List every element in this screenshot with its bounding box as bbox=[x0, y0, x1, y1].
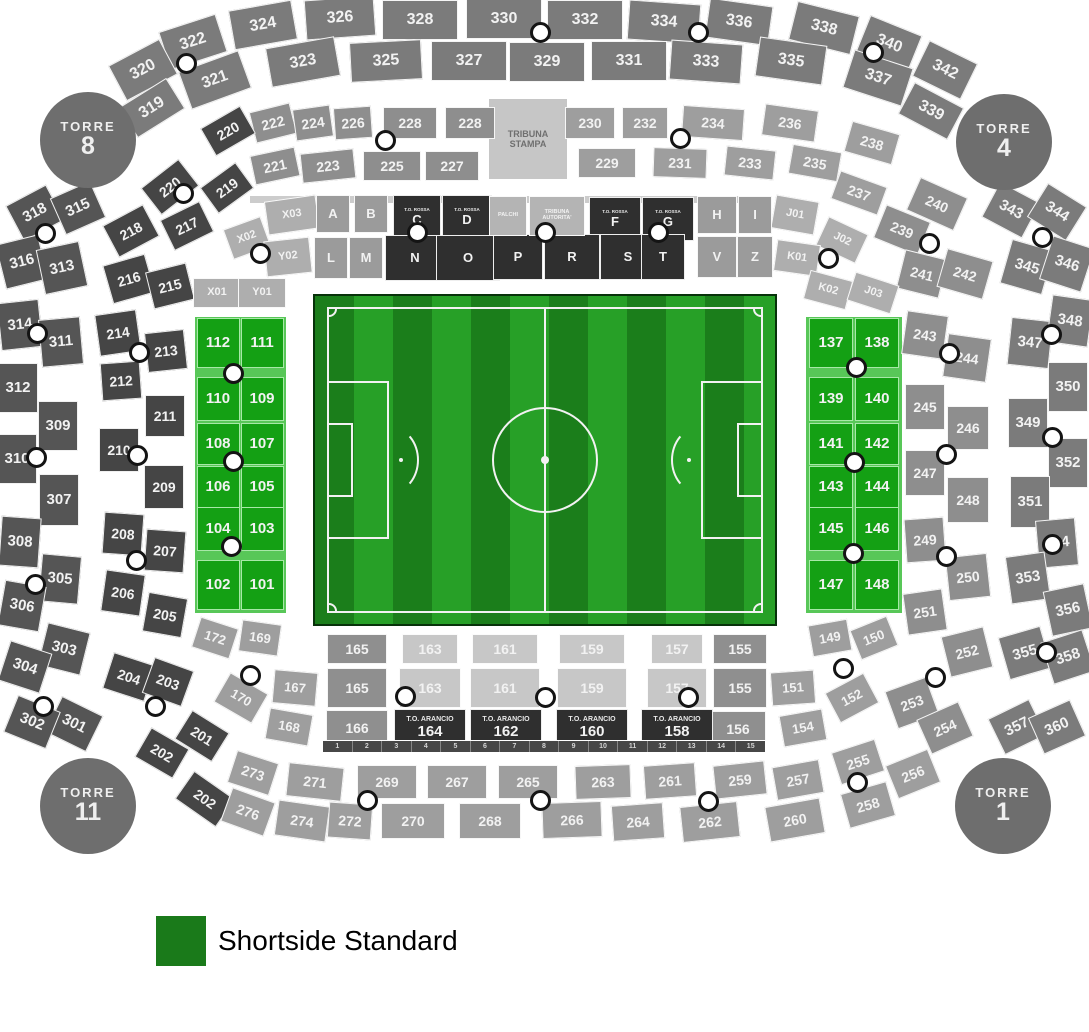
gate-marker bbox=[535, 222, 556, 243]
gate-marker bbox=[936, 546, 957, 567]
section-232[interactable]: 232 bbox=[622, 107, 668, 139]
section-161[interactable]: 161 bbox=[472, 634, 538, 664]
section-139[interactable]: 139 bbox=[809, 377, 853, 421]
section-260[interactable]: 260 bbox=[764, 797, 825, 842]
section-271[interactable]: 271 bbox=[285, 762, 344, 802]
legend: Shortside Standard bbox=[156, 916, 458, 966]
row-number: 7 bbox=[499, 741, 529, 752]
gate-marker bbox=[530, 790, 551, 811]
row-number: 9 bbox=[558, 741, 588, 752]
stadium-map: TRIBUNA STAMPA 3223243263283303323343363… bbox=[0, 0, 1089, 1032]
gate-marker bbox=[925, 667, 946, 688]
section-242[interactable]: 242 bbox=[936, 248, 993, 300]
section-a[interactable]: A bbox=[316, 195, 350, 233]
section-256[interactable]: 256 bbox=[885, 749, 941, 800]
gate-marker bbox=[250, 243, 271, 264]
section-165[interactable]: 165 bbox=[327, 634, 387, 664]
section-238[interactable]: 238 bbox=[844, 121, 901, 166]
section-107[interactable]: 107 bbox=[241, 423, 284, 465]
section-i[interactable]: I bbox=[738, 196, 772, 234]
gate-marker bbox=[35, 223, 56, 244]
section-palchi[interactable]: PALCHI bbox=[489, 196, 527, 236]
row-number: 5 bbox=[440, 741, 470, 752]
section-228[interactable]: 228 bbox=[445, 107, 495, 139]
section-110[interactable]: 110 bbox=[197, 377, 240, 421]
section-350[interactable]: 350 bbox=[1048, 362, 1088, 412]
section-326[interactable]: 326 bbox=[304, 0, 377, 40]
section-207[interactable]: 207 bbox=[144, 529, 187, 574]
gate-marker bbox=[145, 696, 166, 717]
section-140[interactable]: 140 bbox=[855, 377, 899, 421]
tower-4: TORRE4 bbox=[956, 94, 1052, 190]
section-y01[interactable]: Y01 bbox=[238, 278, 286, 308]
gate-marker bbox=[648, 222, 669, 243]
gate-marker bbox=[221, 536, 242, 557]
section-221[interactable]: 221 bbox=[249, 147, 300, 186]
row-number: 1 bbox=[323, 741, 352, 752]
football-pitch bbox=[313, 294, 777, 626]
pitch-field-lines bbox=[327, 307, 763, 613]
section-147[interactable]: 147 bbox=[809, 560, 853, 610]
section-z[interactable]: Z bbox=[737, 236, 773, 278]
row-number: 8 bbox=[529, 741, 559, 752]
tower-number: 11 bbox=[75, 798, 101, 827]
gate-marker bbox=[33, 696, 54, 717]
section-j03[interactable]: J03 bbox=[846, 272, 899, 315]
row-number: 10 bbox=[588, 741, 618, 752]
gate-marker bbox=[173, 183, 194, 204]
section-h[interactable]: H bbox=[697, 196, 737, 234]
section-149[interactable]: 149 bbox=[808, 619, 853, 657]
section-169[interactable]: 169 bbox=[238, 619, 282, 656]
section-p[interactable]: P bbox=[493, 234, 543, 280]
section-274[interactable]: 274 bbox=[274, 800, 331, 843]
section-224[interactable]: 224 bbox=[292, 105, 334, 142]
section-229[interactable]: 229 bbox=[578, 148, 636, 178]
section-233[interactable]: 233 bbox=[724, 145, 777, 180]
pitch-center-spot bbox=[541, 456, 549, 464]
tower-11: TORRE11 bbox=[40, 758, 136, 854]
pitch-penalty-spot-left bbox=[399, 458, 403, 462]
gate-marker bbox=[863, 42, 884, 63]
section-o[interactable]: O bbox=[436, 235, 500, 281]
section-335[interactable]: 335 bbox=[755, 36, 828, 85]
section-b[interactable]: B bbox=[354, 195, 388, 233]
gate-marker bbox=[847, 772, 868, 793]
pitch-goal-area-right bbox=[737, 423, 763, 497]
gate-marker bbox=[223, 363, 244, 384]
section-267[interactable]: 267 bbox=[427, 765, 487, 799]
gate-marker bbox=[126, 550, 147, 571]
gate-marker bbox=[407, 222, 428, 243]
section-323[interactable]: 323 bbox=[265, 36, 341, 88]
row-number: 6 bbox=[470, 741, 500, 752]
section-150[interactable]: 150 bbox=[849, 616, 898, 661]
gate-marker bbox=[1032, 227, 1053, 248]
section-222[interactable]: 222 bbox=[249, 102, 297, 143]
section-315[interactable]: 315 bbox=[50, 181, 106, 235]
section-j01[interactable]: J01 bbox=[770, 194, 819, 235]
section-205[interactable]: 205 bbox=[142, 592, 188, 638]
section-313[interactable]: 313 bbox=[36, 241, 89, 295]
tower-number: 1 bbox=[996, 798, 1010, 827]
row-number: 12 bbox=[647, 741, 677, 752]
pitch-corner-arc bbox=[327, 307, 337, 317]
tower-number: 4 bbox=[997, 134, 1011, 163]
section-213[interactable]: 213 bbox=[144, 329, 188, 373]
gate-marker bbox=[843, 543, 864, 564]
section-248[interactable]: 248 bbox=[947, 477, 989, 523]
section-172[interactable]: 172 bbox=[191, 617, 239, 660]
pitch-penalty-spot-right bbox=[687, 458, 691, 462]
section-225[interactable]: 225 bbox=[363, 151, 421, 181]
section-155[interactable]: 155 bbox=[713, 634, 767, 664]
section-259[interactable]: 259 bbox=[712, 760, 767, 799]
gate-marker bbox=[1036, 642, 1057, 663]
section-144[interactable]: 144 bbox=[855, 466, 899, 508]
gate-marker bbox=[818, 248, 839, 269]
section-m[interactable]: M bbox=[349, 237, 383, 279]
gate-marker bbox=[357, 790, 378, 811]
gate-marker bbox=[27, 323, 48, 344]
section-d[interactable]: T.O. ROSSAD bbox=[442, 195, 492, 239]
section-270[interactable]: 270 bbox=[381, 803, 445, 839]
section-148[interactable]: 148 bbox=[855, 560, 899, 610]
section-168[interactable]: 168 bbox=[265, 707, 314, 746]
section-103[interactable]: 103 bbox=[241, 507, 284, 551]
pitch-corner-arc bbox=[753, 603, 763, 613]
gate-marker bbox=[26, 447, 47, 468]
gate-marker bbox=[129, 342, 150, 363]
section-161[interactable]: 161 bbox=[470, 668, 540, 708]
gate-marker bbox=[240, 665, 261, 686]
gate-marker bbox=[939, 343, 960, 364]
row-number: 13 bbox=[676, 741, 706, 752]
gate-marker bbox=[530, 22, 551, 43]
gate-marker bbox=[395, 686, 416, 707]
legend-swatch-shortside-standard bbox=[156, 916, 206, 966]
section-252[interactable]: 252 bbox=[941, 626, 994, 677]
section-237[interactable]: 237 bbox=[830, 170, 887, 215]
section-157[interactable]: 157 bbox=[647, 668, 707, 708]
section-112[interactable]: 112 bbox=[197, 318, 240, 368]
section-268[interactable]: 268 bbox=[459, 803, 521, 839]
section-218[interactable]: 218 bbox=[102, 204, 160, 257]
section-167[interactable]: 167 bbox=[272, 669, 319, 707]
section-102[interactable]: 102 bbox=[197, 560, 240, 610]
section-311[interactable]: 311 bbox=[38, 316, 84, 367]
section-230[interactable]: 230 bbox=[565, 107, 615, 139]
gate-marker bbox=[698, 791, 719, 812]
gate-marker bbox=[670, 128, 691, 149]
section-209[interactable]: 209 bbox=[144, 465, 184, 509]
gate-marker bbox=[688, 22, 709, 43]
section-266[interactable]: 266 bbox=[541, 801, 602, 839]
section-360[interactable]: 360 bbox=[1028, 699, 1086, 754]
section-r[interactable]: R bbox=[544, 234, 600, 280]
gate-marker bbox=[833, 658, 854, 679]
section-226[interactable]: 226 bbox=[333, 106, 373, 141]
section-246[interactable]: 246 bbox=[947, 406, 989, 450]
gate-marker bbox=[223, 451, 244, 472]
section-101[interactable]: 101 bbox=[241, 560, 284, 610]
gate-marker bbox=[375, 130, 396, 151]
gate-marker bbox=[919, 233, 940, 254]
section-329[interactable]: 329 bbox=[509, 42, 585, 82]
section-236[interactable]: 236 bbox=[761, 103, 819, 142]
section-151[interactable]: 151 bbox=[770, 670, 816, 707]
gate-marker bbox=[1041, 324, 1062, 345]
section-v[interactable]: V bbox=[697, 236, 737, 278]
gate-marker bbox=[25, 574, 46, 595]
pitch-corner-arc bbox=[753, 307, 763, 317]
gate-marker bbox=[127, 445, 148, 466]
section-212[interactable]: 212 bbox=[100, 361, 143, 402]
section-155[interactable]: 155 bbox=[713, 668, 767, 708]
row-number: 4 bbox=[411, 741, 441, 752]
section-307[interactable]: 307 bbox=[39, 474, 79, 526]
section-111[interactable]: 111 bbox=[241, 318, 284, 368]
row-number: 2 bbox=[352, 741, 382, 752]
section-223[interactable]: 223 bbox=[300, 148, 357, 183]
section-308[interactable]: 308 bbox=[0, 516, 42, 569]
section-105[interactable]: 105 bbox=[241, 466, 284, 508]
gate-marker bbox=[535, 687, 556, 708]
gate-marker bbox=[844, 452, 865, 473]
section-331[interactable]: 331 bbox=[591, 41, 667, 81]
row-numbers-strip: 123456789101112131415 bbox=[322, 740, 766, 753]
section-109[interactable]: 109 bbox=[241, 377, 284, 421]
tower-number: 8 bbox=[81, 132, 95, 161]
section-163[interactable]: 163 bbox=[402, 634, 458, 664]
section-324[interactable]: 324 bbox=[228, 0, 298, 50]
section-106[interactable]: 106 bbox=[197, 466, 240, 508]
section-312[interactable]: 312 bbox=[0, 363, 38, 413]
section-215[interactable]: 215 bbox=[145, 262, 195, 309]
gate-marker bbox=[678, 687, 699, 708]
row-number: 3 bbox=[381, 741, 411, 752]
section-x01[interactable]: X01 bbox=[193, 278, 241, 308]
section-157[interactable]: 157 bbox=[651, 634, 703, 664]
gate-marker bbox=[176, 53, 197, 74]
row-number: 11 bbox=[617, 741, 647, 752]
gate-marker bbox=[846, 357, 867, 378]
tower-8: TORRE8 bbox=[40, 92, 136, 188]
section-245[interactable]: 245 bbox=[905, 384, 945, 430]
section-251[interactable]: 251 bbox=[902, 588, 947, 635]
section-x03[interactable]: X03 bbox=[264, 195, 320, 236]
section-257[interactable]: 257 bbox=[771, 759, 824, 801]
section-y02[interactable]: Y02 bbox=[263, 237, 313, 278]
row-number: 14 bbox=[706, 741, 736, 752]
gate-marker bbox=[1042, 534, 1063, 555]
section-220[interactable]: 220 bbox=[200, 106, 256, 157]
section-261[interactable]: 261 bbox=[643, 762, 697, 800]
section-159[interactable]: 159 bbox=[559, 634, 625, 664]
section-l[interactable]: L bbox=[314, 237, 348, 279]
section-328[interactable]: 328 bbox=[382, 0, 458, 40]
section-159[interactable]: 159 bbox=[557, 668, 627, 708]
section-235[interactable]: 235 bbox=[788, 144, 842, 182]
section-264[interactable]: 264 bbox=[611, 802, 665, 842]
section-206[interactable]: 206 bbox=[100, 569, 145, 616]
section-231[interactable]: 231 bbox=[652, 147, 707, 179]
section-219[interactable]: 219 bbox=[200, 162, 254, 214]
section-332[interactable]: 332 bbox=[547, 0, 623, 40]
section-333[interactable]: 333 bbox=[669, 40, 744, 85]
section-k02[interactable]: K02 bbox=[803, 270, 853, 310]
section-154[interactable]: 154 bbox=[779, 708, 828, 747]
section-146[interactable]: 146 bbox=[855, 507, 899, 551]
section-227[interactable]: 227 bbox=[425, 151, 479, 181]
tower-1: TORRE1 bbox=[955, 758, 1051, 854]
section-137[interactable]: 137 bbox=[809, 318, 853, 368]
section-211[interactable]: 211 bbox=[145, 395, 185, 437]
section-234[interactable]: 234 bbox=[681, 105, 745, 141]
section-327[interactable]: 327 bbox=[431, 41, 507, 81]
gate-marker bbox=[1042, 427, 1063, 448]
row-number: 15 bbox=[735, 741, 765, 752]
legend-label: Shortside Standard bbox=[218, 925, 458, 957]
section-165[interactable]: 165 bbox=[327, 668, 387, 708]
section-263[interactable]: 263 bbox=[574, 764, 631, 800]
gate-marker bbox=[936, 444, 957, 465]
section-309[interactable]: 309 bbox=[38, 401, 78, 451]
pitch-corner-arc bbox=[327, 603, 337, 613]
section-143[interactable]: 143 bbox=[809, 466, 853, 508]
section-tribuna-stampa[interactable]: TRIBUNA STAMPA bbox=[488, 98, 568, 180]
section-152[interactable]: 152 bbox=[825, 673, 880, 724]
section-325[interactable]: 325 bbox=[349, 39, 423, 83]
pitch-goal-area-left bbox=[327, 423, 353, 497]
